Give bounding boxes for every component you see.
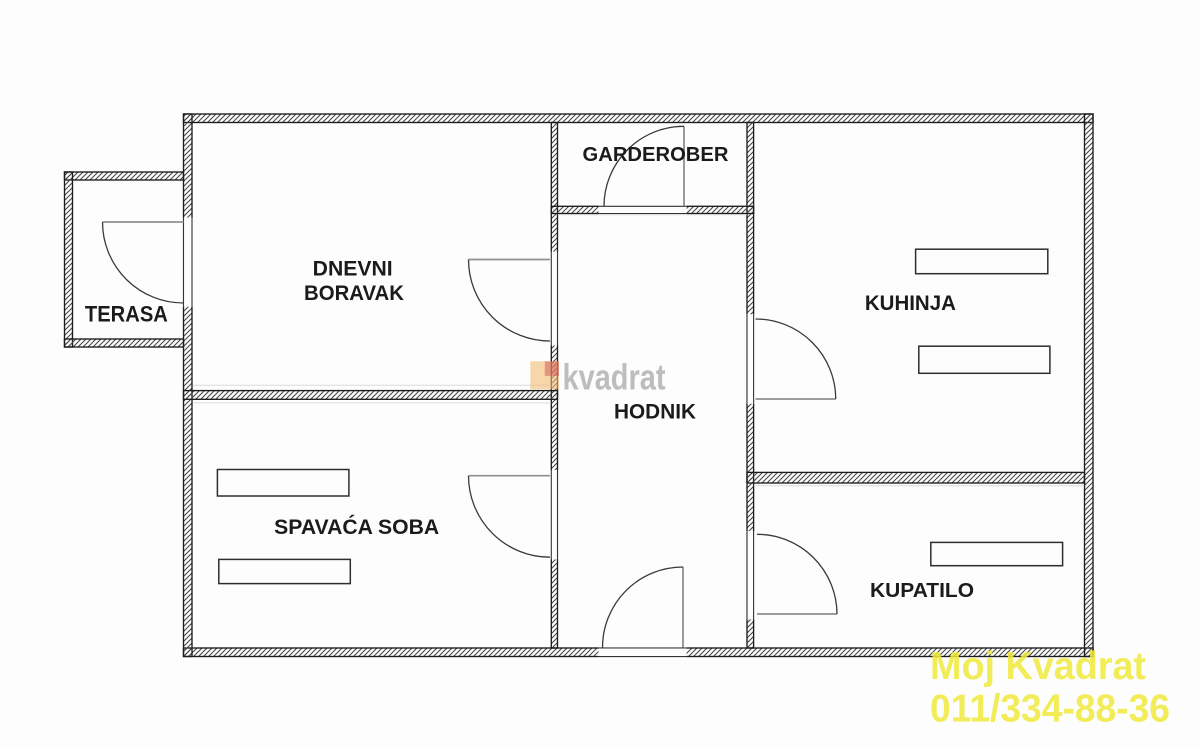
svg-text:KUPATILO: KUPATILO <box>870 579 974 602</box>
svg-text:KUHINJA: KUHINJA <box>865 292 956 315</box>
svg-text:HODNIK: HODNIK <box>614 400 696 423</box>
svg-text:DNEVNI: DNEVNI <box>313 257 393 280</box>
svg-text:TERASA: TERASA <box>85 302 168 327</box>
svg-text:GARDEROBER: GARDEROBER <box>583 143 729 166</box>
svg-text:BORAVAK: BORAVAK <box>304 282 404 305</box>
svg-text:kvadrat: kvadrat <box>563 357 666 398</box>
svg-text:SPAVAĆA SOBA: SPAVAĆA SOBA <box>274 515 439 539</box>
svg-text:Moj Kvadrat: Moj Kvadrat <box>930 645 1146 688</box>
svg-text:011/334-88-36: 011/334-88-36 <box>930 687 1170 730</box>
